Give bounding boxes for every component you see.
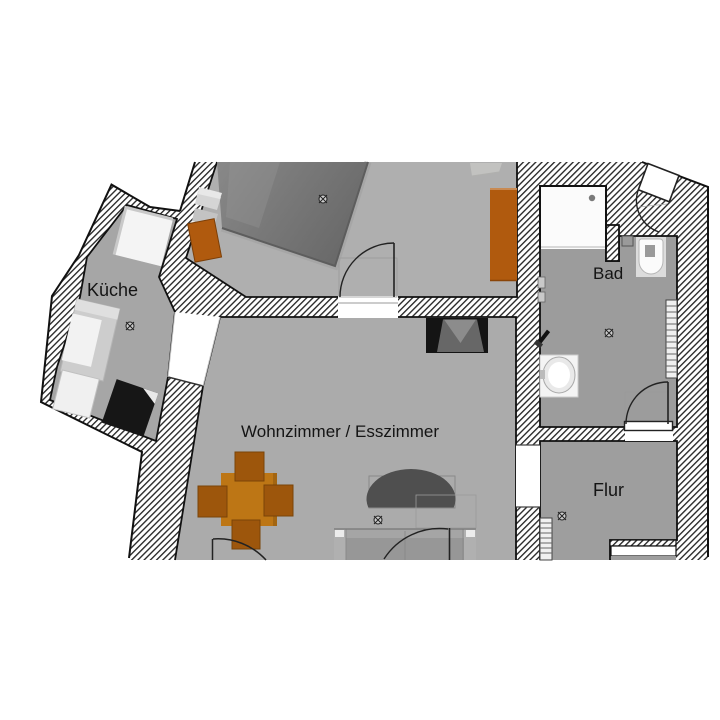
svg-text:Flur: Flur xyxy=(593,480,624,500)
svg-text:Bad: Bad xyxy=(593,264,623,283)
svg-text:Wohnzimmer / Esszimmer: Wohnzimmer / Esszimmer xyxy=(241,422,439,441)
svg-text:Küche: Küche xyxy=(87,280,138,300)
